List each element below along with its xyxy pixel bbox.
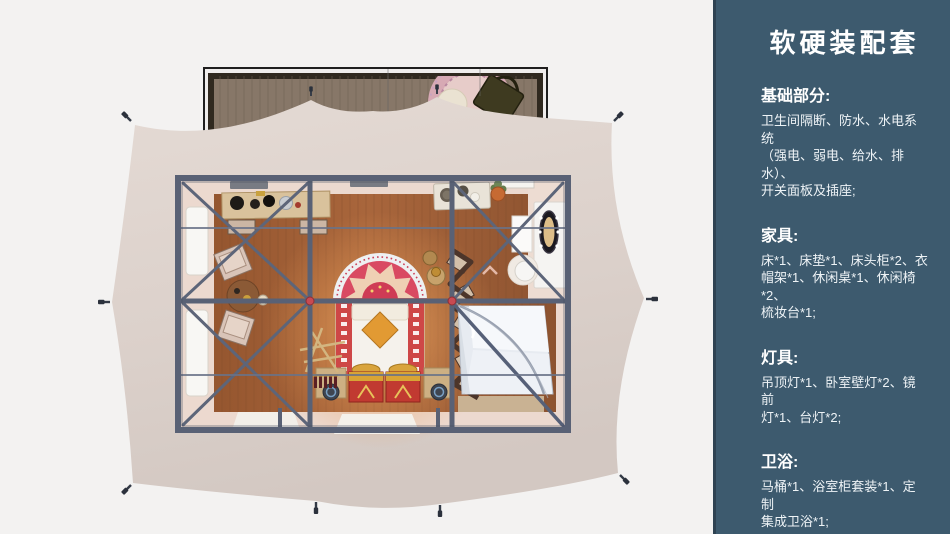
bathroom-mat	[458, 396, 544, 412]
section-heading: 卫浴:	[761, 452, 928, 474]
section-heading: 基础部分:	[761, 86, 928, 108]
section-body: 卫生间隔断、防水、水电系统 （强电、弱电、给水、排水）、 开关面板及插座;	[761, 112, 928, 200]
section-heading: 灯具:	[761, 348, 928, 370]
frame-hub	[448, 297, 456, 305]
section-bathroom: 卫浴: 马桶*1、浴室柜套装*1、定制 集成卫浴*1;	[761, 452, 928, 531]
frame-hub	[306, 297, 314, 305]
section-lighting: 灯具: 吊顶灯*1、卧室壁灯*2、镜前 灯*1、台灯*2;	[761, 348, 928, 427]
section-body: 马桶*1、浴室柜套装*1、定制 集成卫浴*1;	[761, 478, 928, 531]
floorplan-render	[0, 0, 715, 534]
section-body: 吊顶灯*1、卧室壁灯*2、镜前 灯*1、台灯*2;	[761, 374, 928, 427]
round-table	[227, 280, 259, 312]
bed	[333, 253, 427, 374]
section-basics: 基础部分: 卫生间隔断、防水、水电系统 （强电、弱电、给水、排水）、 开关面板及…	[761, 86, 928, 200]
bottle-row	[313, 374, 338, 388]
side-window	[186, 207, 208, 275]
room	[178, 178, 568, 448]
section-furniture: 家具: 床*1、床垫*1、床头柜*2、衣 帽架*1、休闲桌*1、休闲椅*2、 梳…	[761, 226, 928, 322]
slide: 软硬装配套 基础部分: 卫生间隔断、防水、水电系统 （强电、弱电、给水、排水）、…	[0, 0, 950, 534]
panel-title: 软硬装配套	[761, 28, 928, 58]
section-heading: 家具:	[761, 226, 928, 248]
section-body: 床*1、床垫*1、床头柜*2、衣 帽架*1、休闲桌*1、休闲椅*2、 梳妆台*1…	[761, 252, 928, 322]
info-panel: 软硬装配套 基础部分: 卫生间隔断、防水、水电系统 （强电、弱电、给水、排水）、…	[713, 0, 950, 534]
